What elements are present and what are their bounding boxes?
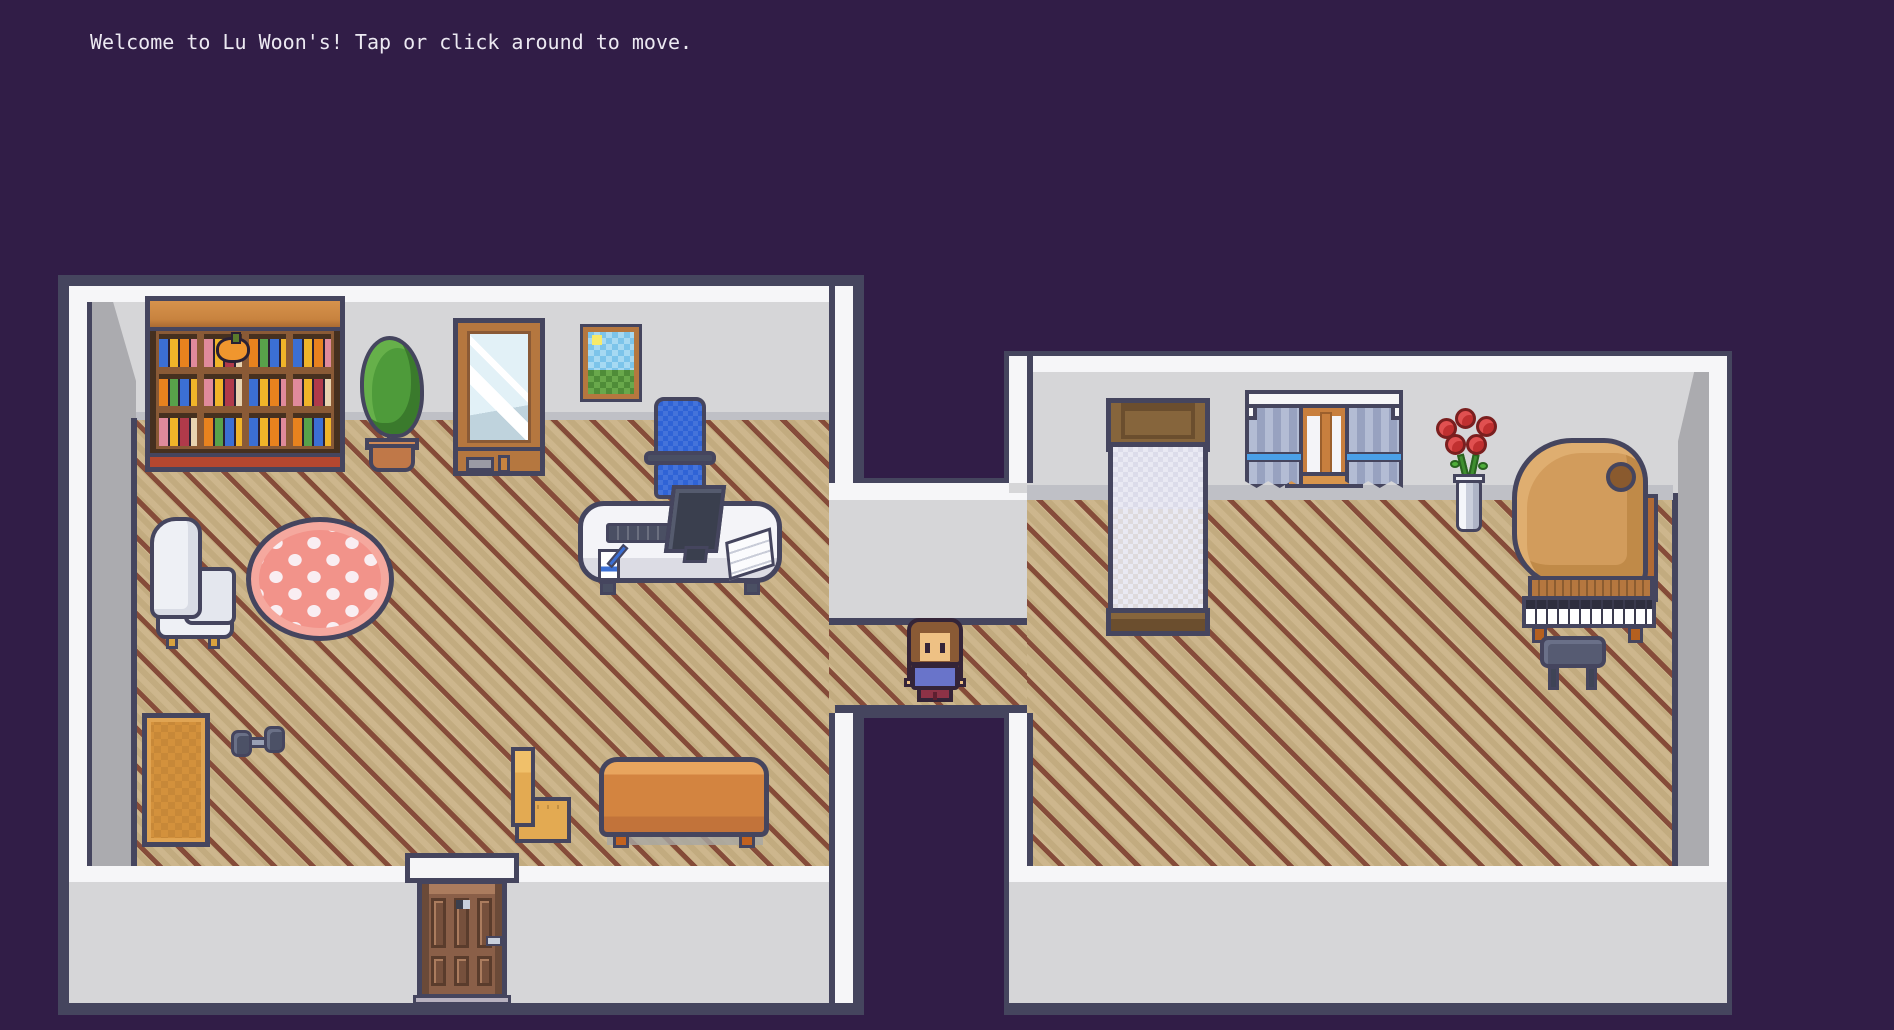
keyboard [606, 523, 670, 543]
dumbbell-weight [231, 730, 252, 757]
book-row [293, 334, 331, 367]
door-peephole [456, 900, 470, 909]
player-character [903, 618, 967, 704]
window-frame [1297, 404, 1351, 480]
bookshelf-base [150, 453, 340, 467]
right-room-top-trim [1009, 356, 1727, 372]
right-room-side-wall-shade [1678, 372, 1709, 866]
bookshelf-cornice [150, 301, 340, 331]
door-panel-frame [417, 879, 507, 999]
window-valance [1245, 390, 1403, 408]
rose-leaf [1478, 462, 1488, 470]
painting-sun [592, 335, 602, 345]
wooden-chair-backrest [511, 747, 535, 827]
standing-mirror[interactable] [453, 318, 545, 476]
rose-vase[interactable] [1434, 408, 1502, 534]
computer-desk[interactable] [578, 499, 782, 595]
bed-mattress [1108, 442, 1208, 618]
rose-flower [1445, 434, 1466, 455]
round-rug[interactable] [246, 517, 394, 641]
player-pants [917, 686, 953, 702]
piano-stool[interactable] [1540, 636, 1610, 706]
valance-cap [1391, 404, 1403, 420]
potted-plant[interactable] [360, 336, 424, 472]
computer-monitor [664, 485, 726, 553]
couch[interactable] [599, 753, 771, 849]
player-hand [904, 678, 913, 687]
valance-cap [1245, 404, 1257, 420]
rose-flower [1455, 408, 1476, 429]
door-panel [454, 956, 469, 986]
desk-leg [744, 581, 760, 595]
door-panel [431, 898, 446, 948]
rose-leaf [1450, 460, 1460, 468]
bookshelf[interactable] [145, 296, 345, 472]
book-row [249, 413, 287, 446]
painting-hills [588, 370, 634, 394]
right-room-west-wall-edge-upper [1027, 356, 1033, 483]
couch-body [599, 757, 769, 837]
curtained-window[interactable] [1245, 390, 1403, 502]
rose-flower [1466, 434, 1487, 455]
player-eye [925, 643, 930, 653]
door-threshold [413, 995, 511, 1005]
book-row [204, 374, 242, 407]
book-row [204, 413, 242, 446]
door-panel [431, 956, 446, 986]
right-room-bottom-trim [1009, 866, 1727, 882]
curtain-tie [1245, 452, 1303, 462]
pumpkin-decoration [216, 337, 250, 363]
piano-hinge [1606, 462, 1636, 492]
book-row [159, 334, 197, 367]
bed-footboard [1106, 608, 1210, 636]
right-room-front-wall [1009, 882, 1727, 1003]
book-row [293, 374, 331, 407]
book-row [159, 374, 197, 407]
player-face [920, 633, 950, 661]
armchair[interactable] [150, 517, 240, 647]
stool-seat [1540, 636, 1606, 668]
exercise-mat[interactable] [142, 713, 210, 847]
stool-leg [1548, 666, 1559, 690]
right-room-west-wall-upper [1009, 356, 1027, 483]
book-row [293, 413, 331, 446]
mirror-knob [498, 455, 510, 473]
door-handle [486, 936, 502, 946]
book-row [249, 374, 287, 407]
mirror-base [458, 447, 540, 471]
right-shade-edge-line [1672, 500, 1678, 866]
bed-blanket [1113, 509, 1203, 613]
mirror-glass [467, 331, 531, 443]
curtain-tie [1345, 452, 1403, 462]
player-eye [940, 643, 945, 653]
landscape-painting[interactable] [583, 327, 639, 399]
player-hand [957, 678, 966, 687]
plant-pot [369, 444, 415, 472]
bed[interactable] [1106, 398, 1210, 638]
wooden-chair[interactable] [511, 747, 571, 847]
book-row [249, 334, 287, 367]
desk-leg [600, 581, 616, 595]
piano-lid [1512, 438, 1648, 588]
vase-body [1456, 480, 1482, 532]
dumbbell-weight [264, 726, 285, 753]
bed-pillow [1113, 447, 1203, 509]
office-chair-backrest [654, 397, 706, 457]
armchair-backrest [150, 517, 202, 619]
mirror-base-plate [466, 457, 494, 471]
stool-leg [1586, 666, 1597, 690]
door-panel [477, 956, 492, 986]
book-row [159, 413, 197, 446]
front-door[interactable] [405, 853, 519, 1005]
game-stage: Welcome to Lu Woon's! Tap or click aroun… [0, 0, 1894, 1030]
plant-foliage [360, 336, 424, 438]
piano-keyboard [1522, 596, 1656, 628]
grand-piano[interactable] [1510, 438, 1662, 654]
piano-leg [1628, 626, 1643, 643]
dumbbell[interactable] [231, 722, 285, 764]
